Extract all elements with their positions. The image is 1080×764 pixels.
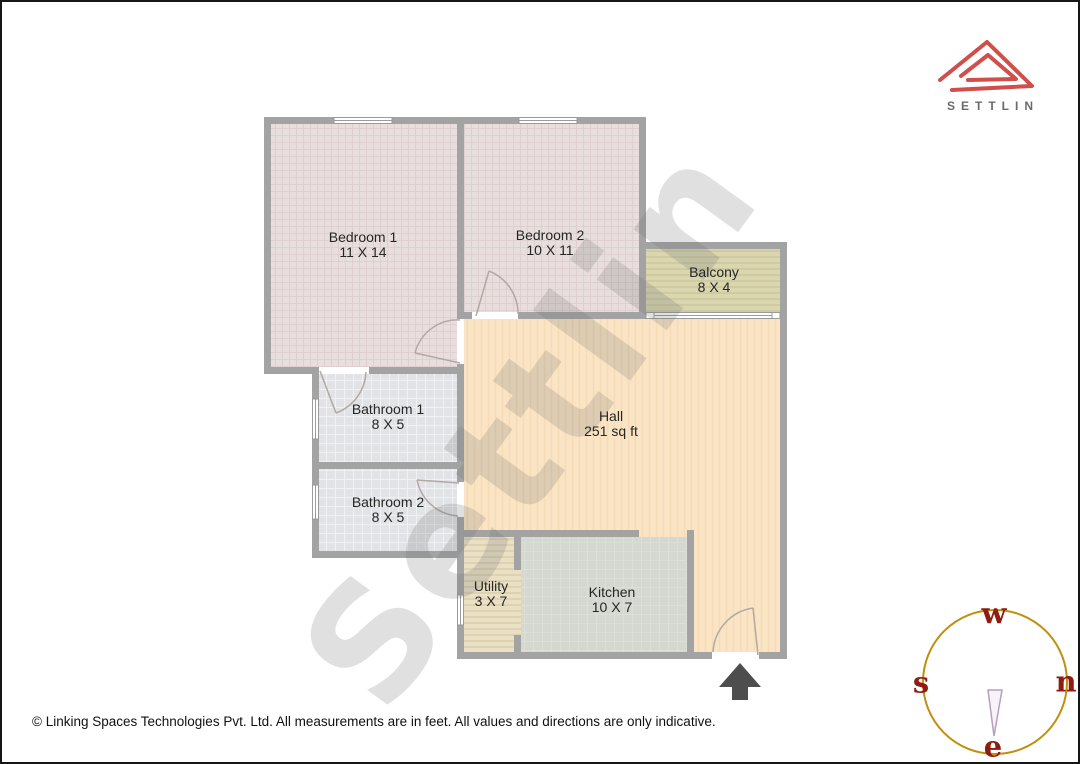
bedroom2-window: [519, 118, 577, 124]
entrance-arrow: [719, 663, 761, 700]
floorplan-page: Settlin Bedroom 1 11 X 14 Bedroom 2 10 X…: [0, 0, 1080, 764]
compass-letter-s: s: [913, 669, 929, 698]
compass-letter-n: n: [1055, 668, 1076, 697]
kitchen-floor: [521, 537, 687, 652]
balcony-floor: [646, 249, 780, 315]
bedroom2-floor: [464, 124, 639, 312]
utility-window: [458, 595, 464, 625]
floorplan-drawing: [2, 2, 1080, 764]
bedroom1-window: [334, 118, 392, 124]
brand-logo-icon: [940, 42, 1032, 90]
bathroom2-window: [313, 485, 319, 519]
compass-letter-e: e: [984, 733, 1002, 762]
utility-floor: [464, 537, 521, 652]
bathroom1-floor: [319, 374, 457, 462]
room-fills: [271, 124, 780, 652]
brand-wordmark: SETTLIN: [947, 99, 1039, 113]
bathroom1-window: [313, 399, 319, 439]
balcony-sliding-door: [646, 313, 780, 319]
compass-letter-w: w: [982, 600, 1007, 629]
copyright-note: © Linking Spaces Technologies Pvt. Ltd. …: [32, 714, 716, 729]
